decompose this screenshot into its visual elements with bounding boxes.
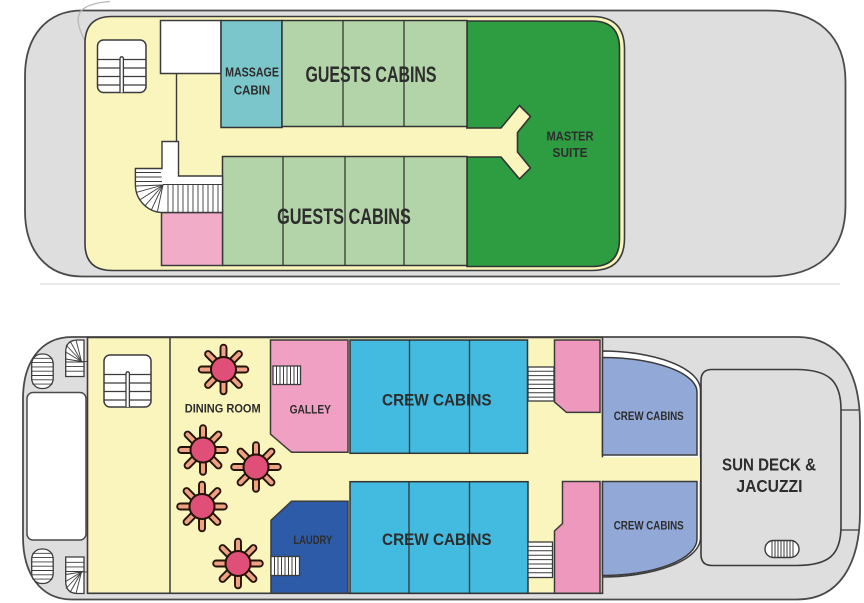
svg-text:CREW CABINS: CREW CABINS <box>382 391 492 410</box>
svg-text:SUITE: SUITE <box>553 146 588 160</box>
svg-text:DINING ROOM: DINING ROOM <box>185 403 261 415</box>
svg-text:GUESTS CABINS: GUESTS CABINS <box>305 64 436 88</box>
svg-text:GUESTS CABINS: GUESTS CABINS <box>277 205 411 230</box>
svg-text:CREW CABINS: CREW CABINS <box>614 520 684 533</box>
svg-text:JACUZZI: JACUZZI <box>736 476 802 496</box>
svg-text:MASSAGE: MASSAGE <box>225 64 279 79</box>
svg-text:MASTER: MASTER <box>547 129 594 144</box>
svg-text:SUN DECK &: SUN DECK & <box>722 454 816 475</box>
svg-text:LAUDRY: LAUDRY <box>293 534 332 547</box>
svg-text:GALLEY: GALLEY <box>290 404 332 417</box>
svg-text:CREW CABINS: CREW CABINS <box>382 530 492 549</box>
svg-text:CREW CABINS: CREW CABINS <box>614 410 684 423</box>
svg-text:CABIN: CABIN <box>234 83 270 98</box>
